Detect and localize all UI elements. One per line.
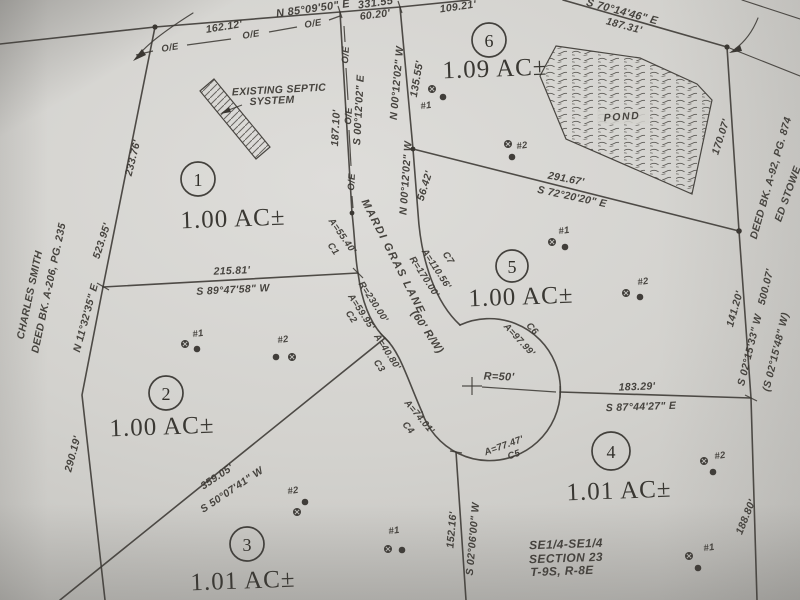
scanned-plat-photo: POND EXISTING SEPTIC SYSTEM 1 2 3 4 5 6 … (0, 0, 800, 600)
corner-dot (736, 228, 742, 234)
test-hole-label: #2 (516, 140, 529, 153)
oe-mark-label: O/E (340, 46, 352, 64)
north-seg3-label: 109.21' (439, 0, 477, 15)
corner-dot (152, 24, 157, 29)
road-east-bearing-b-label: N 00°12'02" W (397, 140, 414, 215)
test-hole-m5: #1 (181, 328, 204, 353)
west-seg2-label: 290.19' (62, 435, 83, 475)
test-hole-dot (710, 469, 717, 476)
lot1-lot2-distance-label: 215.81' (212, 264, 250, 278)
section-note-line3: T-9S, R-8E (530, 563, 594, 579)
north-seg2-label: 60.20' (359, 7, 391, 23)
test-hole-m2: #2 (504, 140, 529, 161)
oe-dash (346, 68, 348, 100)
oe-mark-label: O/E (161, 41, 180, 55)
lot4-lot5-distance-label: 183.29' (618, 380, 655, 393)
northeast-neighbor-line (742, 0, 800, 19)
test-hole-dot (509, 154, 516, 161)
test-hole-dot (695, 565, 702, 572)
corner-dot (350, 211, 355, 216)
lot6-number: 6 (485, 31, 494, 51)
oe-mark-label: O/E (346, 173, 358, 191)
plat-drawing: POND EXISTING SEPTIC SYSTEM 1 2 3 4 5 6 … (0, 0, 800, 600)
road-row-label: (60' R/W) (408, 308, 446, 356)
test-hole-m8: #1 (384, 525, 405, 554)
oe-dash (187, 39, 231, 45)
radius-leader-line (482, 387, 556, 392)
road-west-distance-label: 187.10' (329, 109, 343, 146)
test-hole-m9: #2 (700, 450, 727, 476)
test-hole-m4: #2 (622, 276, 650, 301)
culdesac-bulb (422, 319, 560, 461)
test-hole-label: #1 (192, 328, 205, 340)
lot2-number: 2 (162, 384, 171, 404)
lot3-number: 3 (243, 535, 252, 555)
road-east-distance-b-label: 56.42' (415, 169, 435, 202)
curve-c7-id-label: C7 (440, 250, 456, 267)
lot5-number: 5 (508, 257, 517, 277)
lot1-lot2-bearing-label: S 89°47'58" W (196, 282, 271, 298)
lot6-area: 1.09 AC± (442, 54, 548, 85)
pond: POND (540, 46, 712, 194)
northwest-adjoining-line (0, 27, 155, 44)
curve-c6-id-label: C6 (524, 321, 541, 338)
test-hole-label: #2 (714, 450, 727, 463)
lot1-number: 1 (194, 170, 203, 190)
east-record-bearing-label: (S 02°15'48" W) (760, 311, 791, 393)
curve-c1-id-label: C1 (325, 241, 341, 258)
east-distance-label: 500.07' (756, 268, 777, 307)
test-hole-m1: #1 (420, 85, 447, 112)
arrowhead-icon (133, 49, 146, 61)
oe-dash (269, 27, 297, 32)
test-hole-label: #2 (637, 276, 650, 289)
section-note: SE1/4-SE1/4 SECTION 23 T-9S, R-8E (529, 536, 603, 579)
test-hole-dot (399, 547, 406, 554)
lot4-area: 1.01 AC± (566, 476, 672, 507)
curve-c4-id-label: C4 (400, 420, 417, 437)
east-seg1-label: 170.07' (710, 117, 733, 156)
test-hole-label: #1 (420, 100, 433, 112)
road-east-distance-a-label: 135.55' (408, 60, 426, 98)
septic-system: EXISTING SEPTIC SYSTEM (200, 79, 327, 159)
culdesac-radius-label: R=50' (483, 370, 514, 383)
test-hole-dot (440, 94, 447, 101)
test-hole-m10: #1 (685, 542, 715, 572)
oe-mark-label: O/E (242, 28, 261, 42)
lot4-number: 4 (607, 442, 616, 462)
test-hole-dot (302, 499, 309, 506)
lot4-lot5-line (560, 392, 751, 398)
north-seg1-label: 162.12' (205, 18, 243, 36)
utility-marks: O/E O/E O/E O/E O/E O/E (136, 16, 358, 208)
septic-label-line2: SYSTEM (249, 94, 295, 108)
test-hole-m3: #1 (548, 225, 570, 251)
lot5-lot6-bearing-label: S 72°20'20" E (536, 184, 608, 211)
test-hole-m6: #2 (273, 334, 296, 361)
lot1-area: 1.00 AC± (180, 204, 286, 235)
oe-dash (329, 16, 340, 20)
oe-dash (344, 26, 345, 42)
east-seg2-label: 141.20' (724, 290, 746, 329)
test-hole-label: #1 (388, 525, 401, 537)
lot4-lot5-bearing-label: S 87°44'27" E (606, 400, 678, 414)
curved-arrow-topright-icon (735, 18, 758, 49)
lot3-lot4-distance-label: 152.16' (444, 511, 459, 549)
test-hole-label: #2 (277, 334, 290, 347)
test-hole-dot (194, 346, 201, 353)
test-hole-dot (273, 354, 280, 361)
corner-dot (724, 44, 729, 49)
road-east-bearing-a-label: N 00°12'02" W (388, 45, 406, 120)
test-hole-dot (637, 294, 644, 301)
curve-c3-id-label: C3 (371, 358, 387, 375)
oe-mark-label: O/E (343, 107, 355, 125)
test-hole-label: #2 (287, 485, 300, 498)
oe-mark-label: O/E (304, 17, 323, 31)
lot3-area: 1.01 AC± (190, 566, 296, 597)
test-hole-dot (562, 244, 569, 251)
test-hole-m7: #2 (287, 485, 309, 516)
lot3-lot4-bearing-label: S 02°06'00" W (464, 501, 482, 576)
test-hole-label: #1 (558, 225, 571, 237)
lot2-area: 1.00 AC± (109, 412, 215, 443)
test-hole-label: #1 (703, 542, 716, 554)
west-seg1-label: 233.76' (122, 139, 143, 179)
pond-label: POND (603, 110, 640, 125)
lot5-area: 1.00 AC± (468, 282, 574, 313)
